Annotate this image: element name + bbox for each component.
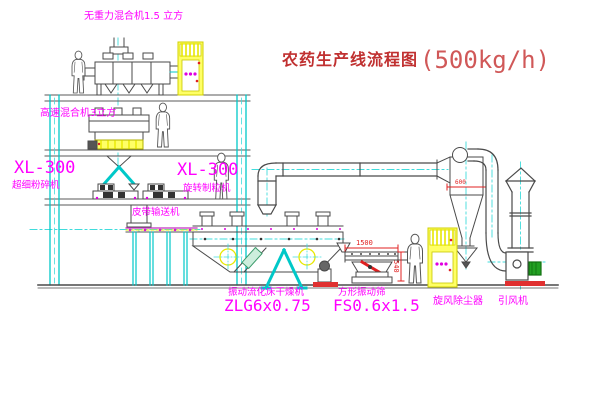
label-fan: 引风机	[498, 297, 528, 307]
label-gravity-mixer: 无重力混合机1.5 立方	[84, 12, 183, 22]
diagram-title: 农药生产线流程图(500kg/h)	[282, 46, 550, 74]
control-cabinet-2	[428, 228, 457, 287]
label-dryer-model: ZLG6x0.75	[224, 298, 311, 314]
label-cyclone: 旋风除尘器	[433, 297, 483, 307]
title-capacity: (500kg/h)	[420, 46, 550, 74]
label-mill-model: XL-300	[14, 160, 75, 177]
dryer-discharge-chute	[234, 248, 266, 272]
induced-draft-fan	[505, 252, 545, 286]
fan-and-stack-drawing	[468, 149, 545, 286]
label-sieve-model: FS0.6x1.5	[333, 298, 420, 314]
operator-1	[72, 51, 85, 93]
y-splitter-pipe	[104, 167, 134, 184]
flow-diagram-canvas: 农药生产线流程图(500kg/h) 无重力混合机1.5 立方 高速混合机3立方 …	[0, 0, 600, 403]
control-cabinet-1	[178, 42, 203, 95]
dimension-cyclone-diameter: 600	[455, 180, 466, 186]
fluid-bed-dryer-drawing	[193, 212, 343, 287]
title-text: 农药生产线流程图	[282, 50, 418, 69]
label-belt-conveyor: 皮带输送机	[132, 208, 180, 218]
label-granulator-model: XL-300	[177, 162, 238, 179]
gravity-mixer-drawing	[84, 38, 184, 95]
dimension-sieve-height: 540	[392, 260, 399, 273]
granulator-machines	[93, 184, 188, 199]
dimension-sieve-length: 1500	[356, 240, 373, 247]
label-granulator-name: 旋转制粒机	[183, 184, 231, 194]
operator-2	[156, 103, 170, 147]
label-high-speed-mixer: 高速混合机3立方	[40, 109, 116, 119]
operator-4	[408, 234, 423, 283]
dryer-vibration-motor	[313, 261, 338, 287]
label-mill-name: 超细粉碎机	[12, 181, 60, 191]
exhaust-duct	[258, 163, 437, 214]
